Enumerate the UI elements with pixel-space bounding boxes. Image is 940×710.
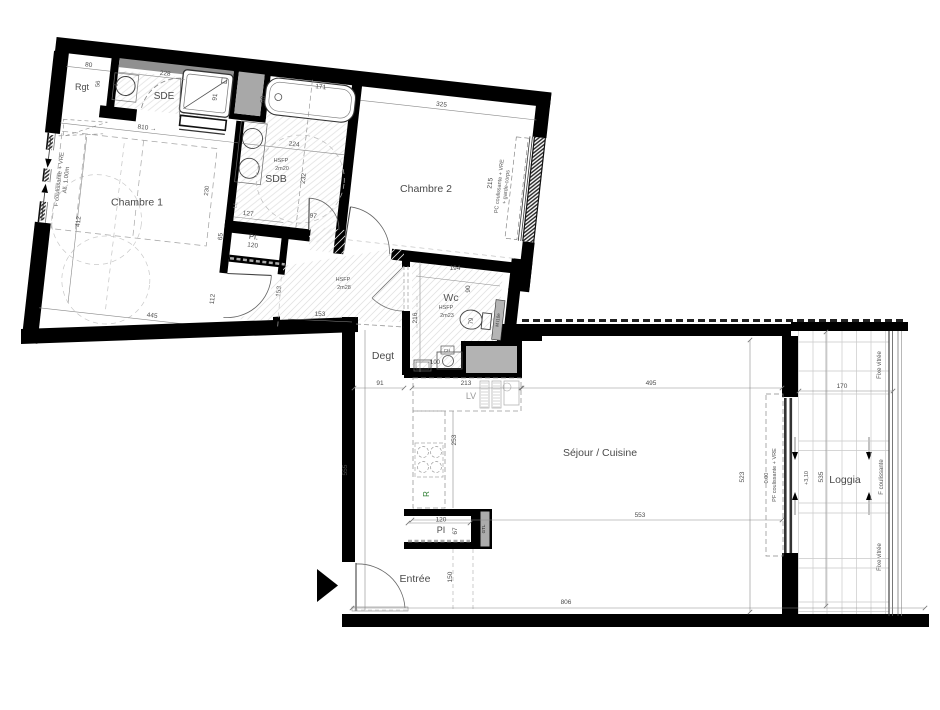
svg-text:230: 230	[204, 185, 211, 196]
svg-text:253: 253	[451, 434, 458, 445]
svg-text:171: 171	[315, 83, 327, 91]
svg-text:Séjour / Cuisine: Séjour / Cuisine	[563, 447, 637, 459]
svg-text:112: 112	[209, 293, 217, 304]
svg-text:2m28: 2m28	[337, 285, 351, 291]
svg-text:R: R	[422, 491, 431, 497]
svg-text:535: 535	[818, 471, 825, 482]
svg-text:91: 91	[376, 380, 384, 387]
svg-text:SDB: SDB	[265, 173, 287, 185]
svg-text:80: 80	[85, 61, 93, 69]
svg-text:PI.: PI.	[249, 232, 259, 242]
svg-text:LL: LL	[233, 202, 240, 209]
svg-text:F coulissante: F coulissante	[879, 459, 885, 495]
svg-text:170: 170	[837, 383, 848, 390]
svg-text:Fixe vitrée: Fixe vitrée	[877, 543, 883, 571]
svg-text:GTL: GTL	[481, 524, 486, 533]
svg-text:PI: PI	[437, 525, 446, 535]
svg-text:91: 91	[212, 93, 220, 101]
svg-text:806: 806	[561, 599, 572, 606]
svg-text:325: 325	[436, 101, 448, 109]
svg-text:Fixe vitrée: Fixe vitrée	[877, 351, 883, 379]
svg-text:LV: LV	[466, 391, 476, 401]
svg-text:Chambre 2: Chambre 2	[400, 183, 452, 195]
svg-text:79: 79	[469, 317, 475, 324]
svg-text:HSFP: HSFP	[274, 158, 289, 164]
svg-text:SDE: SDE	[154, 91, 175, 102]
svg-text:97: 97	[309, 212, 317, 220]
svg-text:553: 553	[635, 512, 646, 519]
svg-text:555: 555	[342, 464, 349, 475]
svg-text:213: 213	[461, 380, 472, 387]
svg-text:216: 216	[412, 312, 419, 323]
svg-text:HSFP: HSFP	[439, 305, 454, 311]
svg-text:90: 90	[465, 285, 472, 293]
svg-text:67: 67	[452, 527, 459, 535]
svg-text:232: 232	[300, 172, 308, 184]
svg-text:0.00: 0.00	[764, 473, 770, 484]
svg-text:+3,10: +3,10	[804, 471, 810, 485]
svg-text:120: 120	[436, 517, 447, 524]
svg-text:120: 120	[247, 242, 259, 250]
svg-text:194: 194	[450, 265, 461, 272]
svg-text:2m23: 2m23	[440, 313, 454, 319]
svg-text:215: 215	[486, 177, 494, 189]
svg-text:HSFP: HSFP	[336, 277, 351, 283]
svg-text:100: 100	[430, 360, 441, 366]
svg-text:224: 224	[288, 141, 300, 149]
svg-text:523: 523	[739, 471, 746, 482]
svg-text:495: 495	[646, 380, 657, 387]
svg-text:Loggia: Loggia	[829, 474, 861, 486]
svg-text:Rgt: Rgt	[75, 82, 90, 92]
svg-text:150: 150	[447, 571, 454, 582]
svg-text:90: 90	[260, 95, 268, 103]
svg-text:Entrée: Entrée	[400, 573, 431, 585]
svg-text:Degt: Degt	[372, 350, 394, 362]
svg-text:CH: CH	[444, 348, 451, 353]
svg-text:2m20: 2m20	[275, 166, 289, 172]
svg-text:PF coulissante + VRE: PF coulissante + VRE	[772, 448, 778, 502]
svg-text:127: 127	[242, 210, 254, 218]
svg-text:153: 153	[315, 311, 326, 318]
svg-text:65: 65	[217, 232, 225, 240]
svg-text:445: 445	[146, 312, 158, 320]
svg-text:228: 228	[159, 70, 171, 78]
svg-text:Wc: Wc	[443, 292, 458, 304]
svg-text:412: 412	[75, 215, 83, 227]
svg-text:Chambre 1: Chambre 1	[111, 197, 163, 209]
